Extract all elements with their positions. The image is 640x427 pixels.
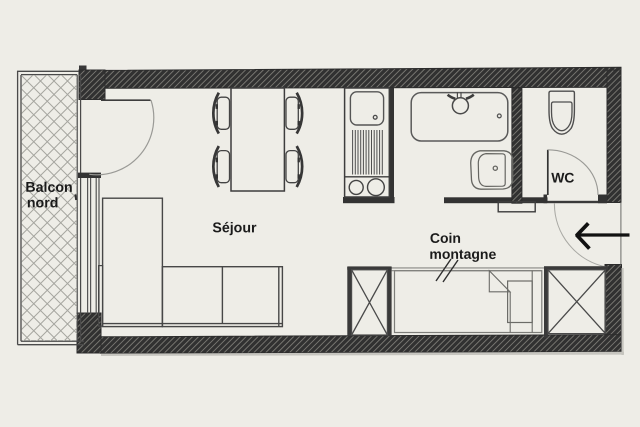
svg-text:Coin: Coin [430, 230, 461, 246]
svg-text:WC: WC [551, 169, 574, 185]
svg-text:Balcon: Balcon [25, 180, 72, 196]
svg-text:nord: nord [27, 195, 59, 211]
svg-text:Séjour: Séjour [212, 220, 257, 236]
svg-text:montagne: montagne [429, 246, 496, 262]
